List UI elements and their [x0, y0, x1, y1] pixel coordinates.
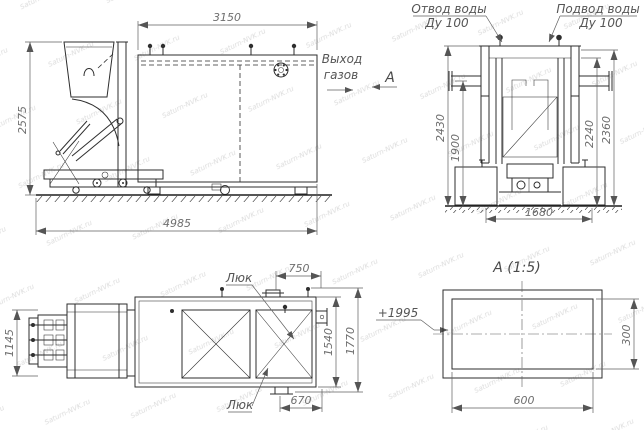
- view-A-label: А: [384, 70, 395, 86]
- inlet-label-line1: Подвод воды: [556, 2, 639, 16]
- dim-2430: 2430: [434, 114, 447, 142]
- hatch-top-text: Люк: [225, 271, 253, 285]
- dim-600: 600: [514, 394, 535, 407]
- drawing-sheet: Saturn-NVK.ru Saturn-NVK.ru: [0, 0, 644, 430]
- gas-label-line1: Выход: [322, 52, 362, 66]
- hatch-bottom-text: Люк: [226, 398, 254, 412]
- dim-1540: 1540: [322, 328, 335, 356]
- dim-2240: 2240: [583, 120, 596, 148]
- elevation-text: +1995: [378, 306, 419, 320]
- dim-1145: 1145: [3, 329, 16, 357]
- inlet-label-line2: Ду 100: [578, 16, 623, 30]
- detail-title: А (1:5): [492, 260, 540, 276]
- dim-1770: 1770: [344, 327, 357, 355]
- dim-4985: 4985: [163, 217, 191, 230]
- dim-1680: 1680: [525, 206, 553, 219]
- dim-670: 670: [291, 394, 312, 407]
- dim-1900: 1900: [449, 134, 462, 162]
- outlet-label-line2: Ду 100: [424, 16, 469, 30]
- dim-750: 750: [289, 262, 310, 275]
- dim-300: 300: [620, 325, 633, 346]
- dim-2360: 2360: [600, 116, 613, 144]
- dim-3150: 3150: [213, 11, 241, 24]
- ground-line-front: [36, 195, 332, 202]
- dim-2575: 2575: [16, 106, 29, 134]
- drawing-canvas: Saturn-NVK.ru Saturn-NVK.ru: [0, 0, 644, 430]
- gas-label-line2: газов: [324, 68, 358, 82]
- outlet-label-line1: Отвод воды: [411, 2, 486, 16]
